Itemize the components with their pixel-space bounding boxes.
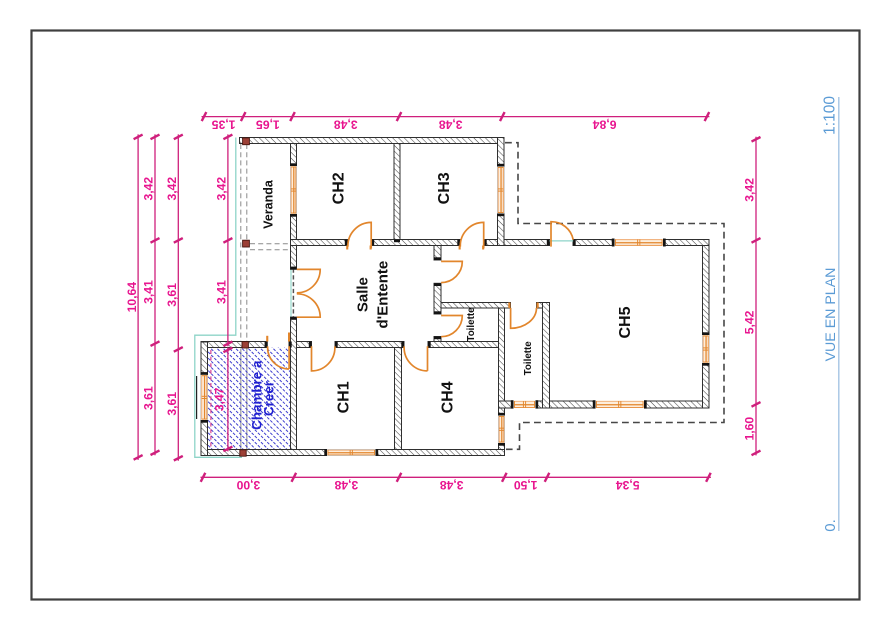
svg-text:3,48: 3,48 [334,118,358,132]
svg-text:3,48: 3,48 [440,478,464,492]
svg-text:0.: 0. [822,519,839,532]
svg-text:1:100: 1:100 [822,96,839,135]
svg-text:Salle: Salle [355,277,372,312]
svg-text:3,41: 3,41 [142,280,156,304]
svg-text:1,60: 1,60 [743,417,757,441]
svg-text:3,61: 3,61 [142,386,156,410]
svg-text:CH1: CH1 [335,381,352,413]
svg-text:CH3: CH3 [436,172,453,204]
svg-text:3,42: 3,42 [743,178,757,202]
svg-text:Toilette: Toilette [523,341,534,376]
svg-text:3,42: 3,42 [142,177,156,201]
svg-text:1,65: 1,65 [256,118,280,132]
svg-text:Toilette: Toilette [466,307,477,342]
svg-text:1,50: 1,50 [514,478,538,492]
svg-text:3,47: 3,47 [213,387,227,411]
svg-text:3,00: 3,00 [236,478,260,492]
svg-text:3,48: 3,48 [334,478,358,492]
svg-text:CH5: CH5 [617,306,634,338]
svg-text:10,64: 10,64 [125,282,139,313]
svg-text:3,61: 3,61 [165,283,179,307]
svg-text:3,61: 3,61 [165,392,179,416]
svg-text:5,42: 5,42 [743,310,757,334]
svg-text:3,42: 3,42 [214,177,228,201]
svg-text:3,41: 3,41 [214,280,228,304]
svg-text:5,34: 5,34 [616,478,640,492]
svg-text:1,35: 1,35 [212,118,236,132]
svg-text:3,42: 3,42 [165,177,179,201]
svg-text:Creer: Creer [261,380,276,416]
svg-text:d'Entente: d'Entente [374,261,391,329]
svg-text:CH4: CH4 [439,381,456,413]
svg-text:VUE EN PLAN: VUE EN PLAN [823,268,839,362]
svg-text:6,84: 6,84 [593,118,617,132]
svg-text:CH2: CH2 [330,172,347,204]
svg-text:Veranda: Veranda [262,179,276,229]
svg-text:3,48: 3,48 [439,118,463,132]
